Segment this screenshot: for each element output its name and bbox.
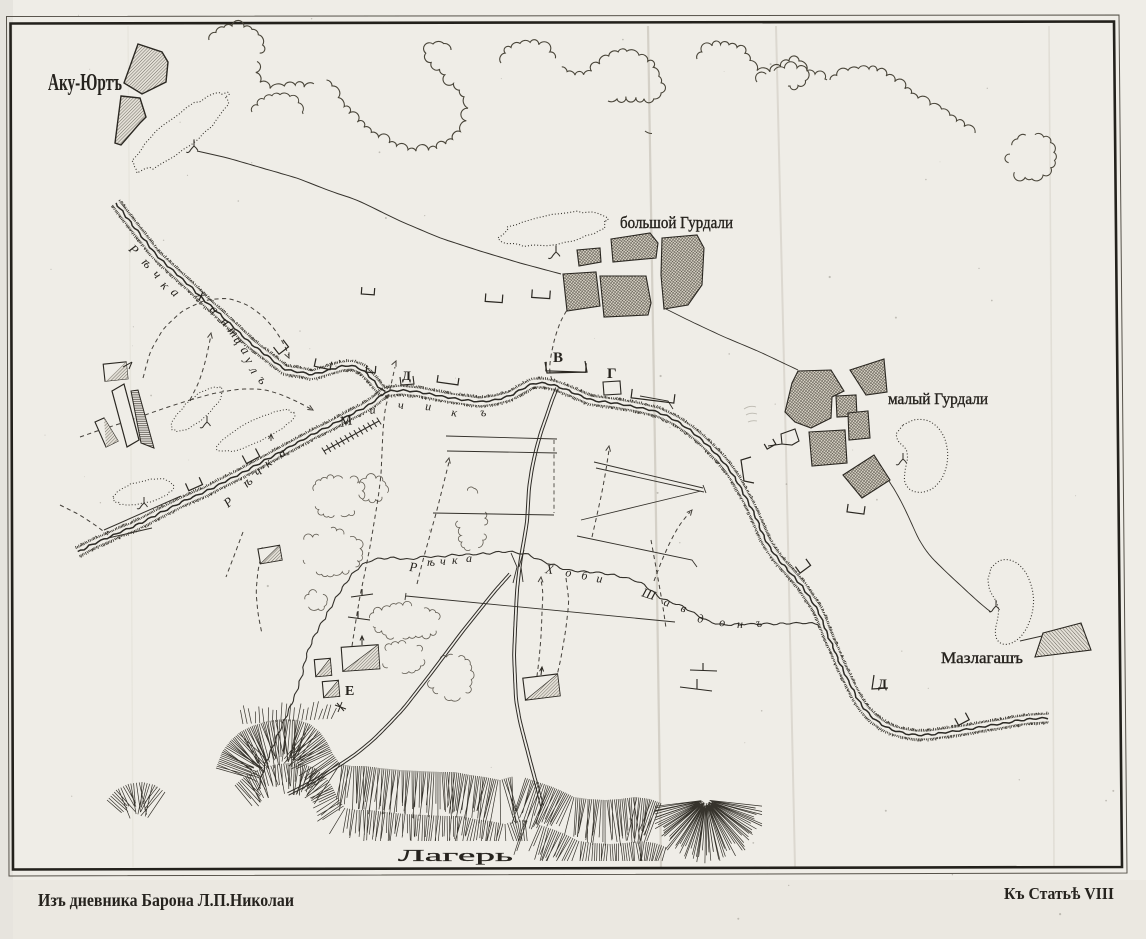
svg-text:Мазлагашъ: Мазлагашъ (941, 650, 1023, 667)
svg-text:ѣ: ѣ (427, 555, 435, 569)
svg-text:большой Гурдали: большой Гурдали (620, 213, 733, 232)
svg-text:ъ: ъ (755, 616, 762, 630)
svg-text:к: к (452, 553, 458, 567)
svg-text:и: и (425, 399, 432, 413)
svg-text:Аку-Юртъ: Аку-Юртъ (48, 70, 122, 96)
svg-text:Лагерь: Лагерь (398, 846, 514, 865)
svg-text:о: о (719, 615, 726, 629)
svg-text:Д: Д (878, 676, 887, 691)
svg-text:В: В (553, 350, 563, 366)
svg-text:Изъ дневника Барона Л.П.Никола: Изъ дневника Барона Л.П.Николаи (38, 890, 294, 910)
svg-text:Р: Р (408, 559, 418, 575)
svg-text:E: E (345, 684, 354, 699)
svg-text:Къ Статьѣ VIII: Къ Статьѣ VIII (1004, 884, 1114, 903)
svg-text:Г: Г (607, 366, 617, 382)
svg-text:ч: ч (398, 398, 404, 412)
svg-text:а: а (466, 551, 472, 565)
svg-text:ъ: ъ (480, 405, 487, 419)
svg-text:ч: ч (440, 554, 446, 568)
svg-text:Д: Д (402, 368, 411, 383)
svg-text:малый Гурдали: малый Гурдали (888, 391, 988, 408)
svg-text:н: н (737, 617, 743, 631)
